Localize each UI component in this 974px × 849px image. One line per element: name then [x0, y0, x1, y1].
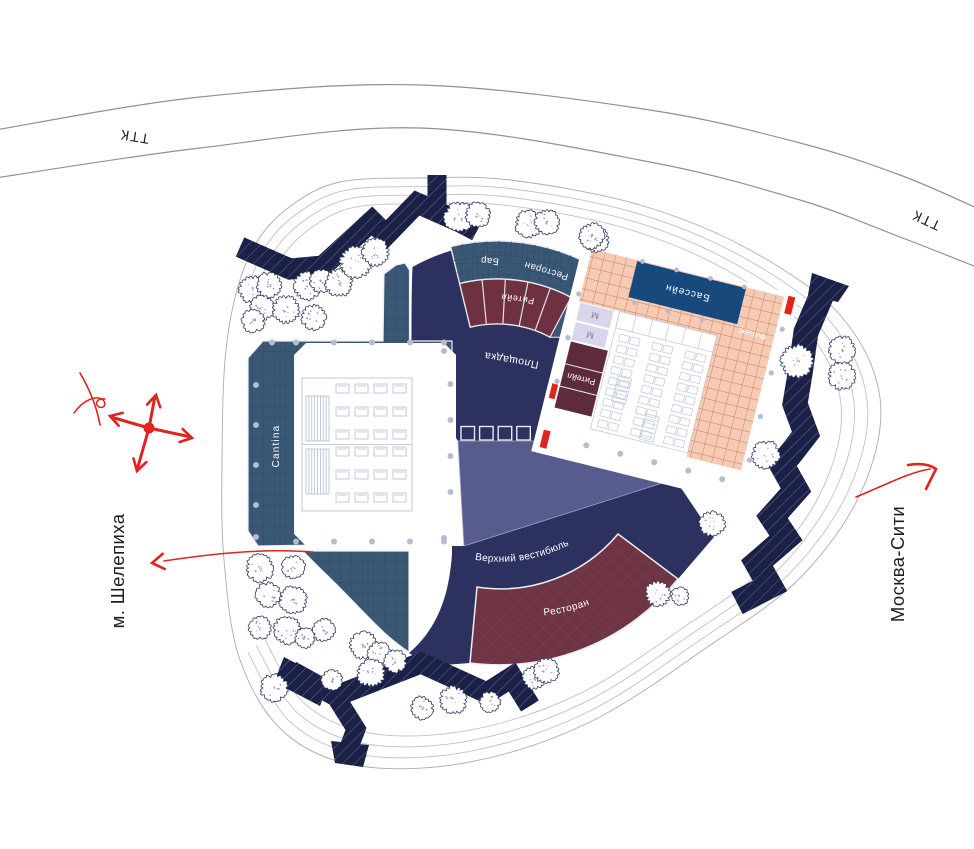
svg-text:Бар: Бар: [480, 254, 499, 267]
svg-text:Cantina: Cantina: [271, 425, 282, 468]
svg-text:Москва-Сити: Москва-Сити: [887, 506, 908, 622]
svg-text:м. Шелепиха: м. Шелепиха: [107, 513, 128, 628]
